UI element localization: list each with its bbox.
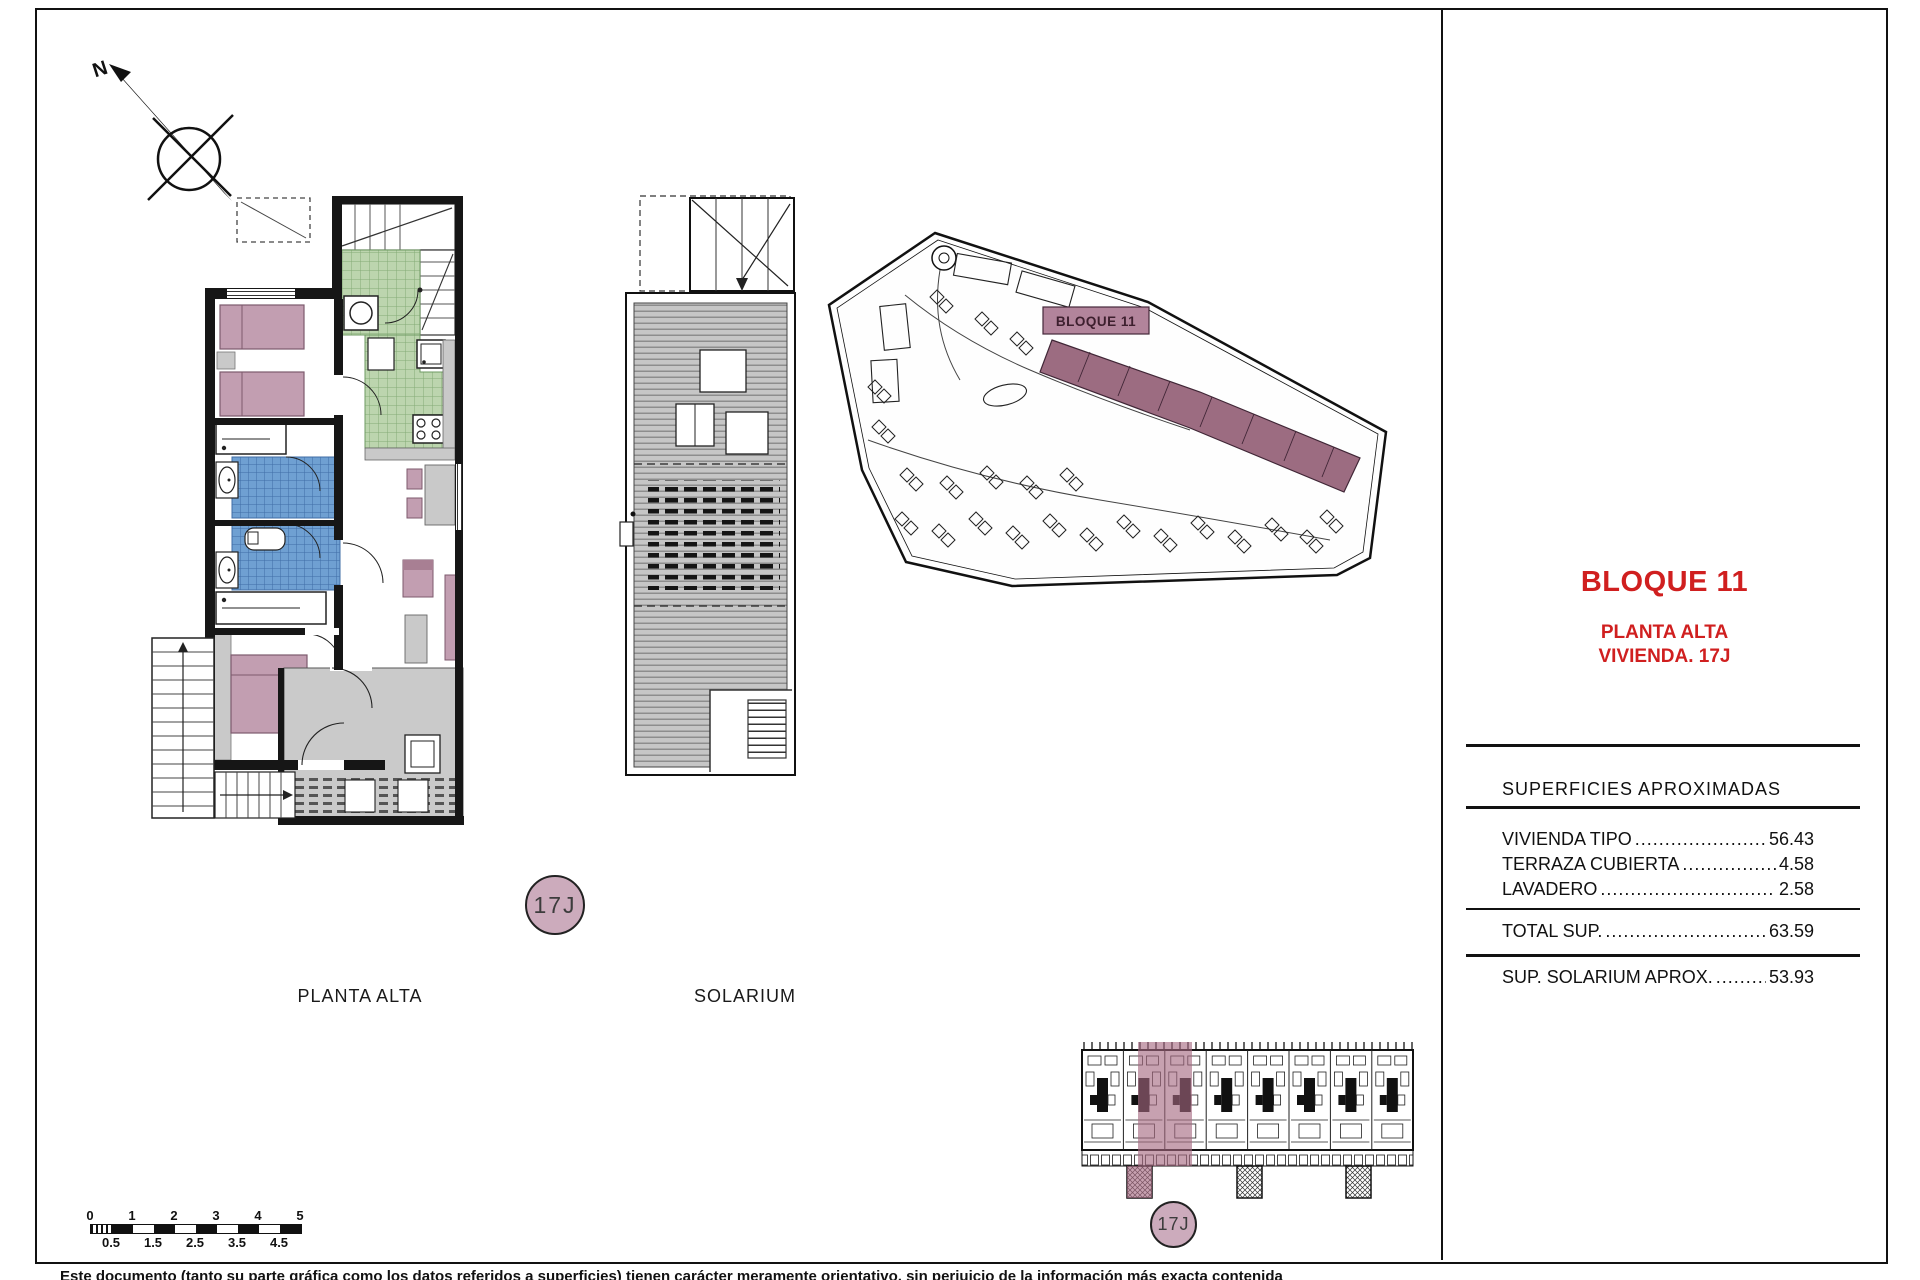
table-row: TERRAZA CUBIERTA .................. 4.58 — [1502, 854, 1814, 875]
table-line-top — [1466, 744, 1860, 747]
panel-subtitle-unit: VIVIENDA. 17J — [1441, 646, 1888, 668]
svg-text:N: N — [90, 57, 111, 82]
panel-title: BLOQUE 11 — [1441, 566, 1888, 599]
planta-alta-plan — [140, 188, 470, 863]
table-line-mid — [1466, 908, 1860, 910]
solarium-label: SOLARIUM — [645, 986, 845, 1007]
table-row: LAVADERO ...............................… — [1502, 879, 1814, 900]
table-total-row: TOTAL SUP. .............................… — [1502, 921, 1814, 942]
scale-bar-strip — [90, 1224, 302, 1234]
table-row: VIVIENDA TIPO ......................... … — [1502, 829, 1814, 850]
surfaces-table: VIVIENDA TIPO ......................... … — [1502, 829, 1814, 904]
surfaces-table-header: SUPERFICIES APROXIMADAS — [1502, 779, 1781, 800]
table-solarium-row: SUP. SOLARIUM APROX. ......... 53.93 — [1502, 967, 1814, 988]
site-plan: BLOQUE 11 — [820, 225, 1395, 595]
table-line-header — [1466, 806, 1860, 809]
scale-bar: 0 1 2 3 4 5 0.5 1.5 2.5 3.5 4.5 — [86, 1208, 316, 1250]
key-plan — [1075, 1038, 1420, 1243]
compass-north-icon: N — [85, 40, 255, 210]
highlighted-unit — [1138, 1042, 1192, 1166]
plan-sheet: N — [0, 0, 1920, 1280]
solarium-plan — [615, 190, 810, 790]
block-label: BLOQUE 11 — [1056, 314, 1136, 329]
planta-alta-label: PLANTA ALTA — [260, 986, 460, 1007]
key-plan-unit-badge: 17J — [1150, 1201, 1197, 1248]
disclaimer-text: Este documento (tanto su parte gráfica c… — [60, 1268, 1870, 1280]
unit-badge: 17J — [525, 875, 585, 935]
table-line-bottom — [1466, 954, 1860, 957]
panel-subtitle-floor: PLANTA ALTA — [1441, 622, 1888, 644]
